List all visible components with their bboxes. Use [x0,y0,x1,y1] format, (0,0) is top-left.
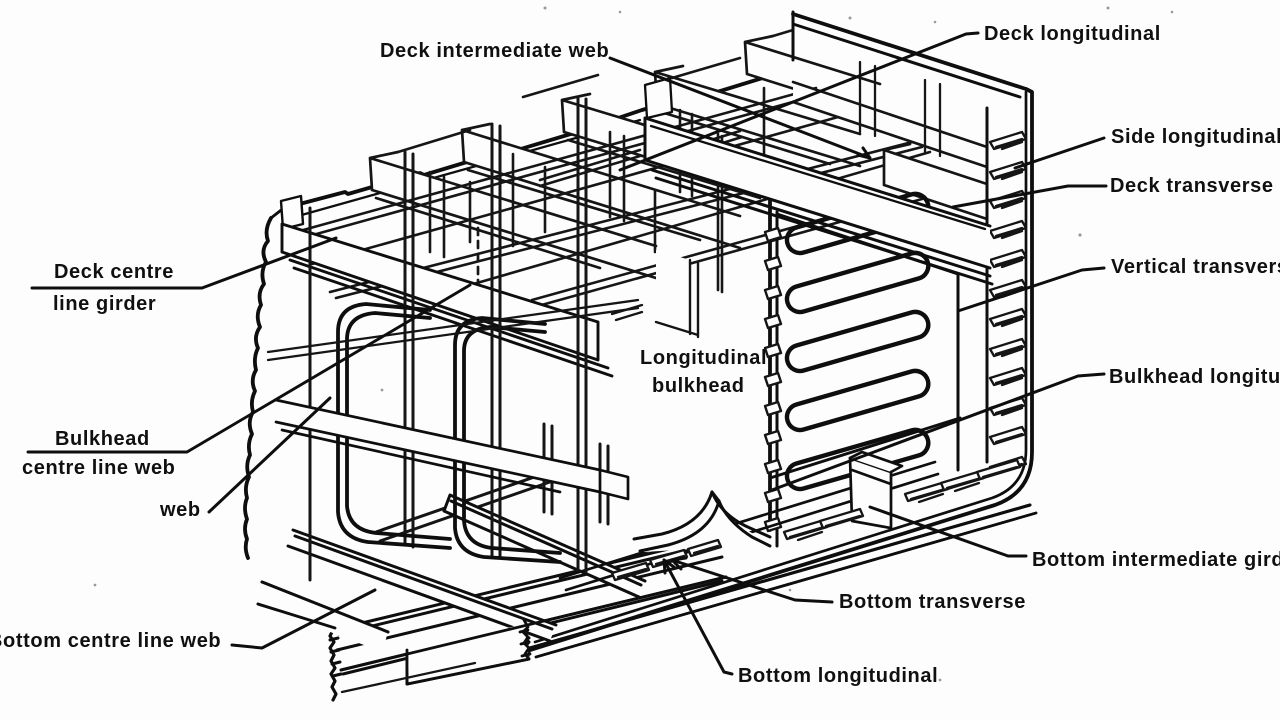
svg-text:Deck centre: Deck centre [54,261,174,283]
svg-text:Bottom transverse: Bottom transverse [839,591,1026,613]
svg-text:Bottom centre line web: Bottom centre line web [0,630,221,652]
svg-text:Deck longitudinal: Deck longitudinal [984,23,1161,45]
svg-text:line girder: line girder [53,293,156,315]
svg-text:Deck transverse: Deck transverse [1110,175,1274,197]
svg-text:Longitudinal: Longitudinal [640,347,767,369]
svg-text:Side longitudinal: Side longitudinal [1111,126,1280,148]
svg-text:centre line web: centre line web [22,457,176,479]
svg-text:bulkhead: bulkhead [652,375,745,397]
svg-text:Bulkhead: Bulkhead [55,428,150,450]
svg-text:Vertical transverse: Vertical transverse [1111,256,1280,278]
svg-text:web: web [159,499,201,521]
svg-text:Bottom longitudinal: Bottom longitudinal [738,665,938,687]
svg-text:Deck intermediate web: Deck intermediate web [380,40,609,62]
svg-text:Bulkhead longitudinal: Bulkhead longitudinal [1109,366,1280,388]
svg-text:Bottom intermediate girder: Bottom intermediate girder [1032,549,1280,571]
